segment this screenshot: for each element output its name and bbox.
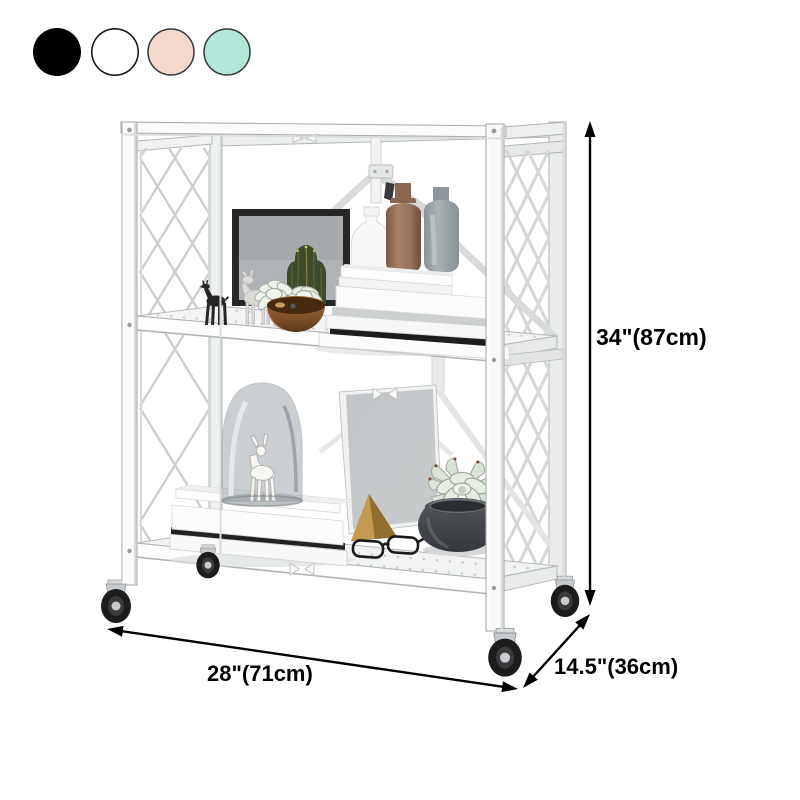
svg-text:34"(87cm): 34"(87cm) [596,324,707,350]
svg-text:28"(71cm): 28"(71cm) [207,661,313,686]
svg-text:14.5"(36cm): 14.5"(36cm) [554,654,678,679]
